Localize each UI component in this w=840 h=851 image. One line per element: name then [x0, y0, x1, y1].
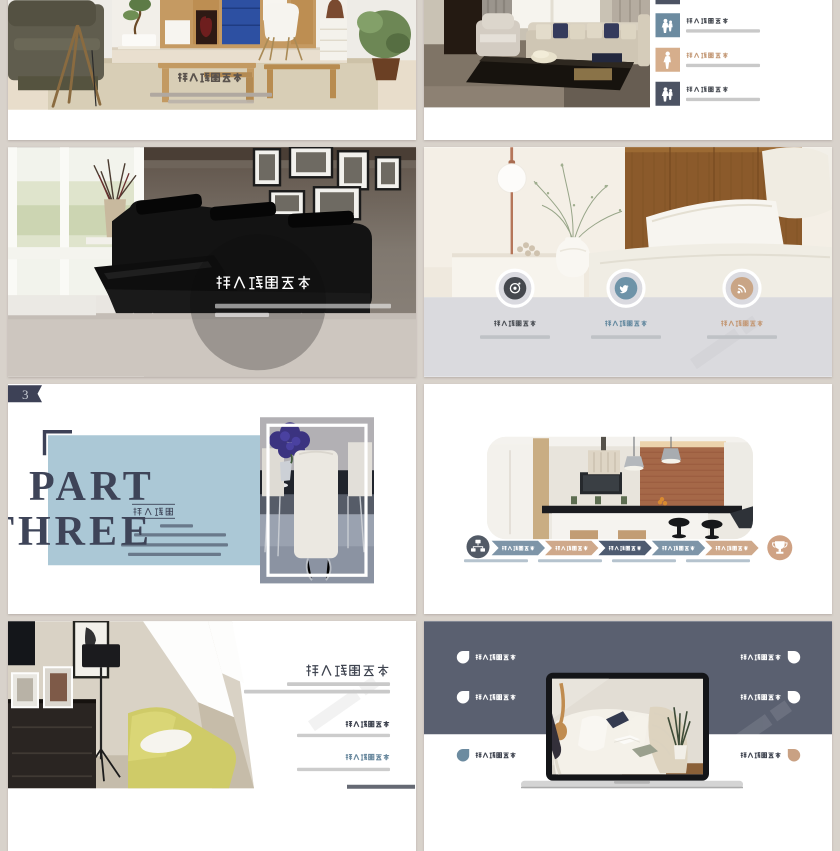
svg-text:3: 3 [22, 387, 29, 402]
svg-text:THREE: THREE [8, 509, 153, 555]
svg-text:PART: PART [29, 464, 155, 510]
